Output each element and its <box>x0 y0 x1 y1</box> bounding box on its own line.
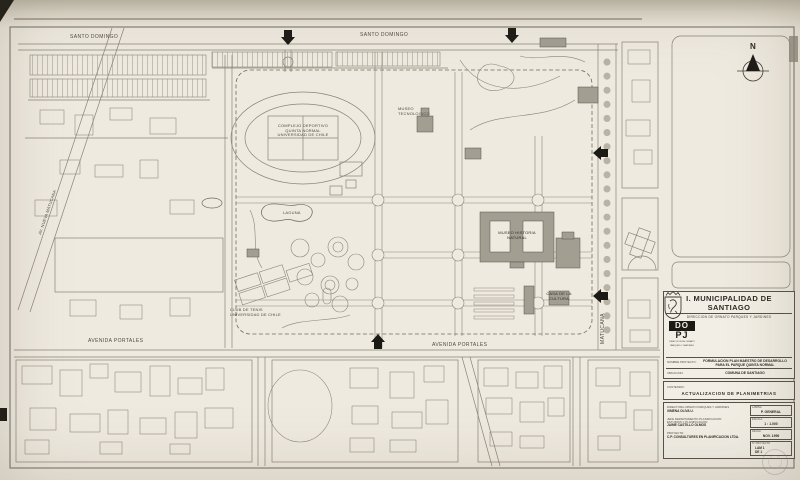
santiago-coat-of-arms <box>663 291 683 321</box>
dopj-caption-1: DIRECCION DE ORNATO <box>669 341 695 344</box>
scan-edge-mark-left <box>0 408 7 421</box>
municipality-subtitle: DIRECCION DE ORNATO PARQUES Y JARDINES <box>666 315 792 319</box>
signature-column: DIRECTORA ORNATO PARQUES Y JARDINES XIME… <box>666 405 748 456</box>
street-label-santo-domingo-east: SANTO DOMINGO <box>360 33 408 38</box>
scale-meta-box: ESCALA 1 : 1.000 <box>750 417 792 428</box>
content-value: ACTUALIZACION DE PLANIMETRIAS <box>666 389 792 397</box>
title-block-content: CONTENIDO: ACTUALIZACION DE PLANIMETRIAS <box>663 381 795 400</box>
title-block: I. MUNICIPALIDAD DE SANTIAGO DIRECCION D… <box>663 291 795 459</box>
street-label-portales-west: AVENIDA PORTALES <box>88 339 143 344</box>
scan-edge-mark-right <box>789 36 798 62</box>
north-arrow <box>737 54 769 81</box>
tennis-line2: UNIVERSIDAD DE CHILE <box>230 313 281 318</box>
dopj-logo-bottom: PJ <box>669 331 695 340</box>
project-name-value: FORMULACION PLAN MAESTRO DE DESARROLLO P… <box>698 359 792 367</box>
project-value-line2: PARA EL PARQUE QUINTA NORMAL <box>698 363 792 367</box>
scan-crease <box>14 18 642 20</box>
museum-line2: NATURAL <box>487 236 547 241</box>
director-name: XIMENA OLIVA U. <box>667 410 747 414</box>
athletic-track <box>231 92 375 195</box>
temple-building <box>622 225 658 261</box>
location-label: UBICACION: <box>666 370 698 375</box>
rowhouse-lots <box>30 52 440 97</box>
sports-complex-label: COMPLEJO DEPORTIVO QUINTA NORMAL UNIVERS… <box>267 124 339 138</box>
project-name-row: NOMBRE PROYECTO: FORMULACION PLAN MAESTR… <box>666 357 792 368</box>
author-name: C.P. CONSULTORES EN PLANIFICACION LTDA. <box>667 436 747 440</box>
dopj-caption-2: PARQUES Y JARDINES <box>669 345 695 348</box>
location-value: COMUNA DE SANTIAGO <box>698 371 792 375</box>
culture-house-label: CASA DE LA CULTURA <box>542 292 576 301</box>
chief-name: JAIME CASTILLO OLMOS <box>667 424 747 428</box>
tech-museum-line2: TECNOLOGICO <box>398 112 430 117</box>
scale-meta-value: 1 : 1.000 <box>752 422 790 426</box>
municipality-title: I. MUNICIPALIDAD DE SANTIAGO <box>666 294 792 314</box>
street-label-portales-east: AVENIDA PORTALES <box>432 343 487 348</box>
tennis-courts <box>235 257 315 305</box>
access-arrow-north-2 <box>505 28 519 43</box>
garden-circles <box>291 237 364 312</box>
street-label-santo-domingo-west: SANTO DOMINGO <box>70 35 118 40</box>
park-paths <box>236 52 592 348</box>
greenhouse-rows <box>474 288 514 319</box>
location-row: UBICACION: COMUNA DE SANTIAGO <box>666 368 792 376</box>
scanned-plan-sheet: SANTO DOMINGO SANTO DOMINGO AVENIDA PORT… <box>0 0 800 480</box>
lagoon-label: LAGUNA <box>283 211 301 216</box>
culture-house-line2: CULTURA <box>542 297 576 302</box>
north-label: N <box>750 42 756 51</box>
temple-plaza <box>628 256 656 270</box>
access-arrow-north-1 <box>281 30 295 45</box>
tech-museum-label: MUSEO TECNOLOGICO <box>398 107 430 116</box>
tech-museum-building <box>417 116 433 132</box>
project-name-label: NOMBRE PROYECTO: <box>666 359 698 367</box>
tennis-club-label: CLUB DE TENIS UNIVERSIDAD DE CHILE <box>230 308 281 317</box>
park-buildings <box>247 38 598 314</box>
date-meta-value: NOV. 1996 <box>752 434 790 438</box>
street-label-matucana: MATUCANA <box>601 313 606 344</box>
natural-history-museum-label: MUSEO HISTORIA NATURAL <box>487 231 547 240</box>
sheet-meta-value: P. GENERAL <box>752 410 790 414</box>
title-block-header: I. MUNICIPALIDAD DE SANTIAGO DIRECCION D… <box>663 291 795 379</box>
dopj-logo: DO PJ DIRECCION DE ORNATO PARQUES Y JARD… <box>669 321 695 347</box>
sheet-meta-box: LAMINA P. GENERAL <box>750 405 792 416</box>
sports-complex-line3: UNIVERSIDAD DE CHILE <box>267 133 339 138</box>
access-arrow-south <box>371 334 385 349</box>
date-meta-box: FECHA NOV. 1996 <box>750 429 792 440</box>
